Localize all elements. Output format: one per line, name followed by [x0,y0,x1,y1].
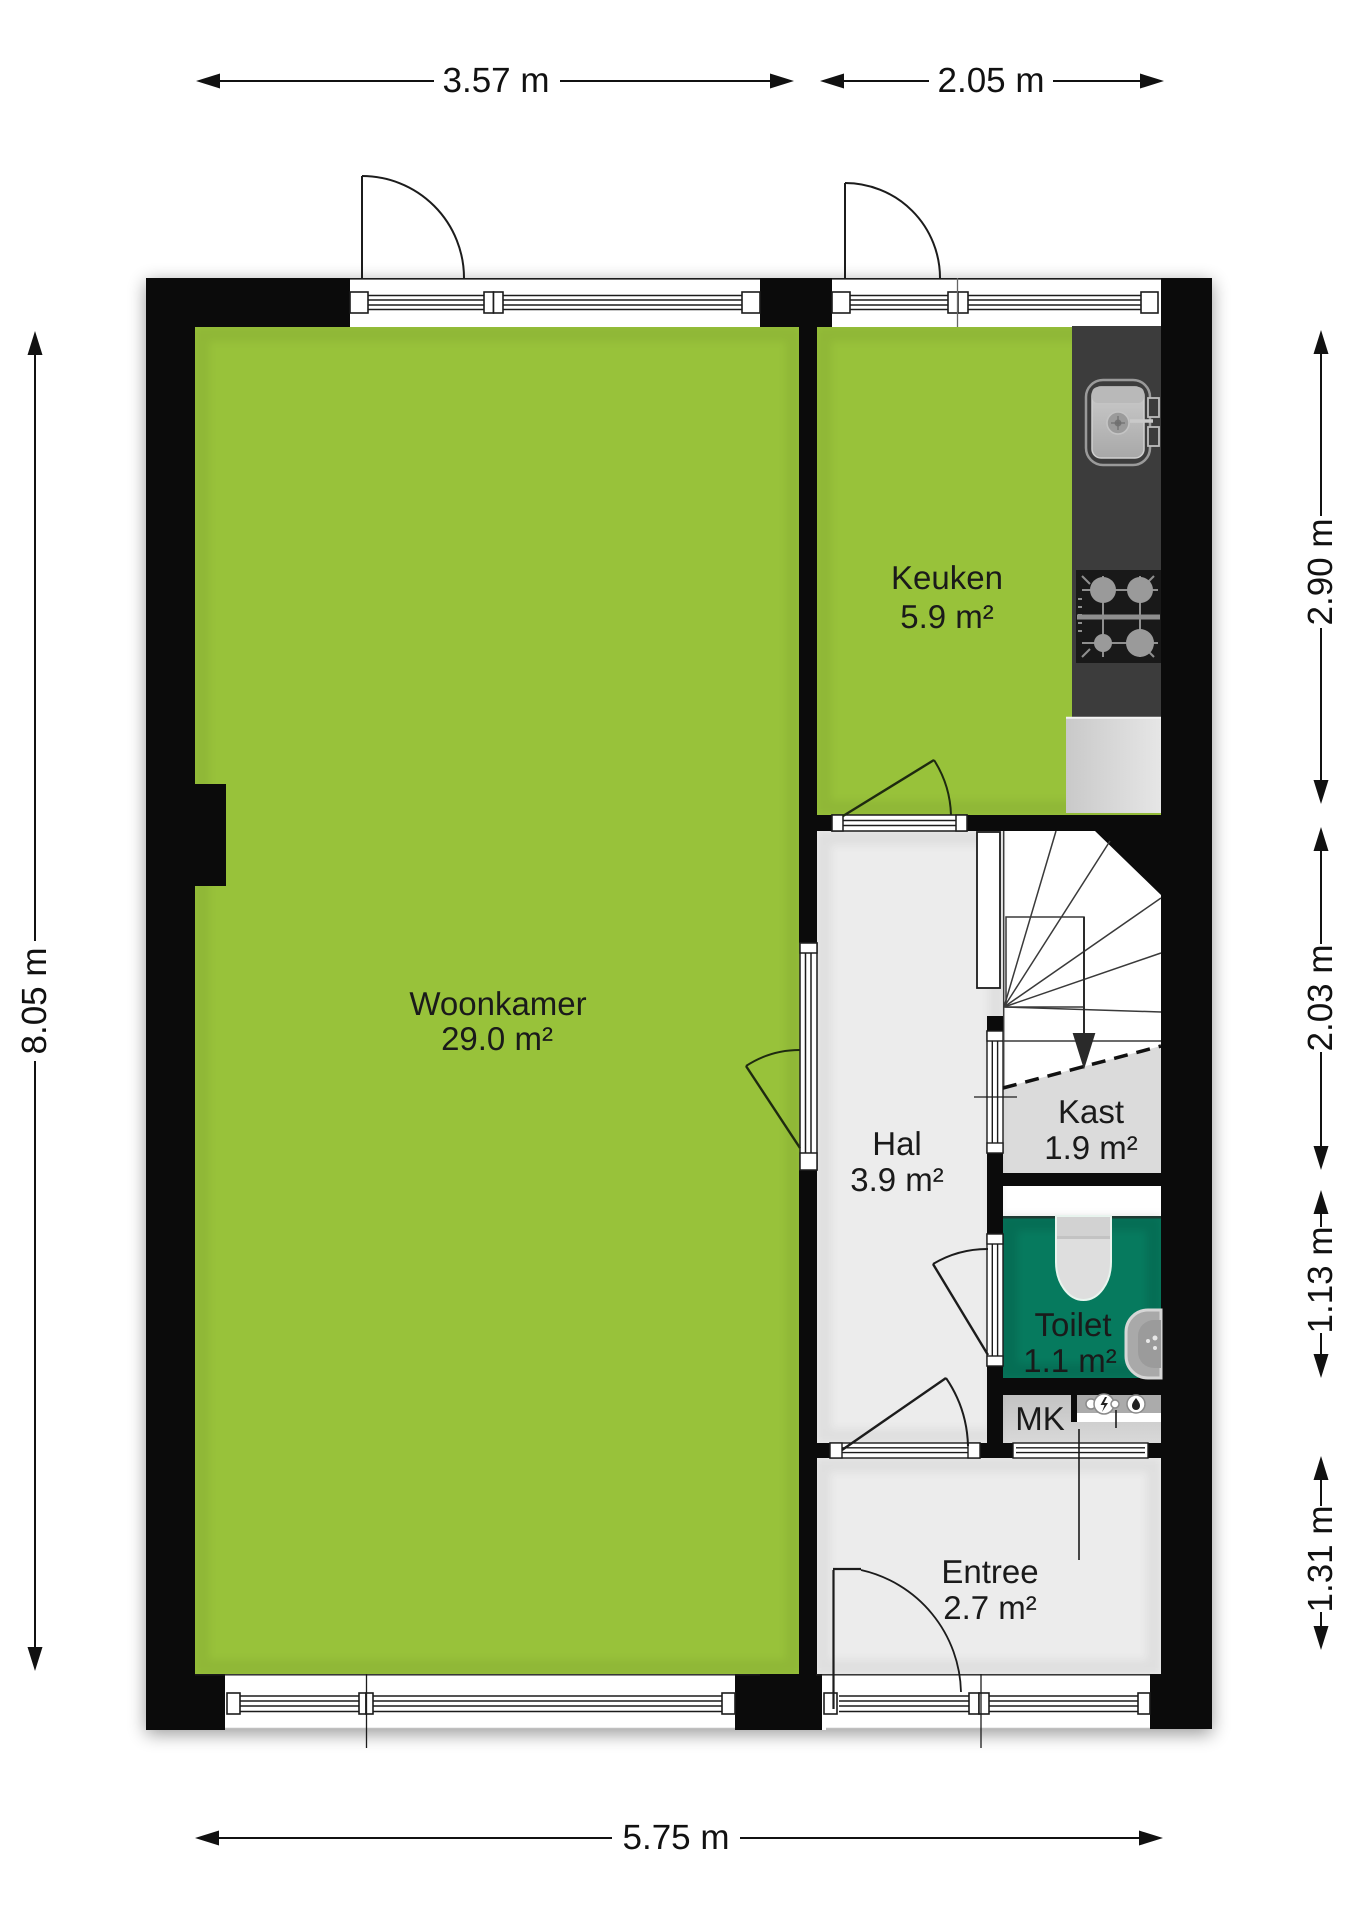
svg-text:8.05 m: 8.05 m [15,948,54,1055]
svg-text:29.0 m²: 29.0 m² [441,1020,553,1057]
svg-text:2.05 m: 2.05 m [938,61,1045,100]
svg-text:Woonkamer: Woonkamer [409,985,586,1022]
svg-text:1.13 m: 1.13 m [1301,1227,1340,1334]
svg-text:1.31 m: 1.31 m [1301,1506,1340,1613]
svg-text:Toilet: Toilet [1034,1306,1111,1343]
svg-text:MK: MK [1015,1400,1065,1437]
svg-text:Kast: Kast [1058,1093,1124,1130]
svg-text:5.75 m: 5.75 m [623,1818,730,1857]
svg-text:3.9 m²: 3.9 m² [850,1161,944,1198]
svg-text:2.90 m: 2.90 m [1301,519,1340,626]
svg-text:3.57 m: 3.57 m [443,61,550,100]
svg-text:2.7 m²: 2.7 m² [943,1589,1037,1626]
svg-text:1.1 m²: 1.1 m² [1023,1342,1117,1379]
svg-text:5.9 m²: 5.9 m² [900,598,994,635]
svg-text:1.9 m²: 1.9 m² [1044,1129,1138,1166]
svg-text:Hal: Hal [872,1125,922,1162]
svg-text:Keuken: Keuken [891,559,1003,596]
svg-text:2.03 m: 2.03 m [1301,945,1340,1052]
svg-text:Entree: Entree [941,1553,1038,1590]
